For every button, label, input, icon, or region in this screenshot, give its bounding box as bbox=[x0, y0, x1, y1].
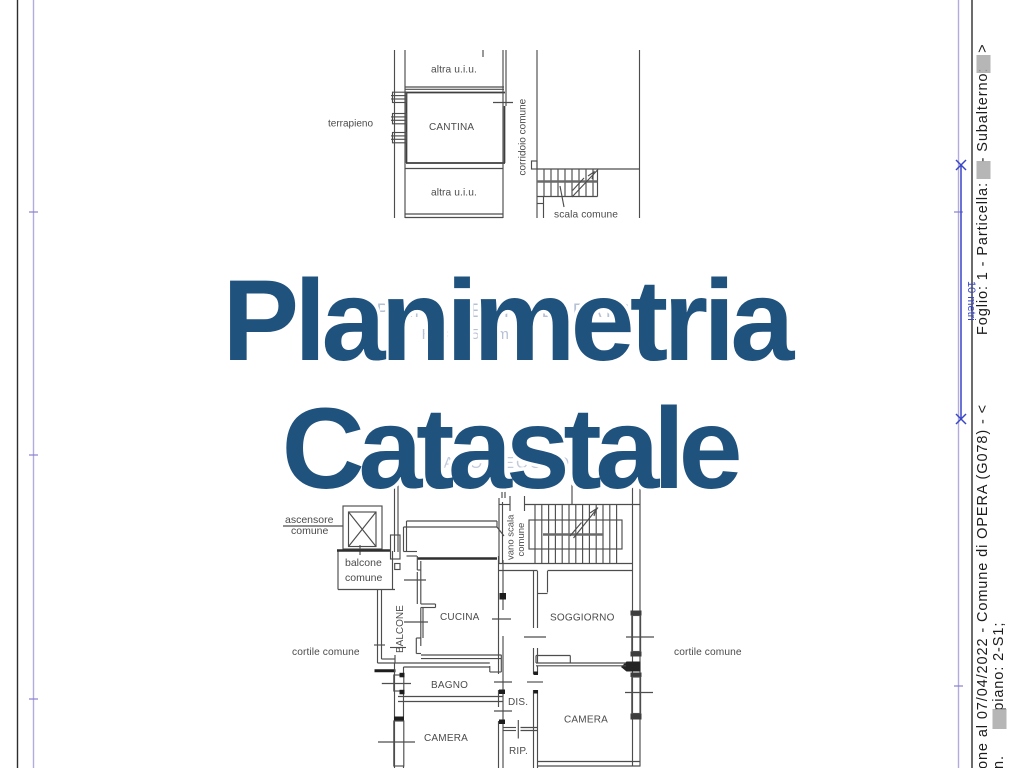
svg-text:comune: comune bbox=[345, 572, 383, 584]
svg-text:Planimetria: Planimetria bbox=[222, 257, 795, 385]
svg-text:Catastale: Catastale bbox=[282, 385, 740, 513]
svg-text:altra u.i.u.: altra u.i.u. bbox=[431, 65, 477, 76]
svg-text:RIP.: RIP. bbox=[509, 746, 528, 757]
svg-text:terrapieno: terrapieno bbox=[328, 119, 373, 130]
svg-text:CAMERA: CAMERA bbox=[424, 733, 468, 744]
svg-text:BALCONE: BALCONE bbox=[395, 605, 406, 653]
svg-text:n. piano: 2-S1;: n. piano: 2-S1; bbox=[991, 622, 1007, 768]
svg-text:altra u.i.u.: altra u.i.u. bbox=[431, 188, 477, 199]
svg-text:vano scala: vano scala bbox=[506, 514, 517, 560]
svg-text:CANTINA: CANTINA bbox=[429, 122, 474, 133]
svg-text:cortile comune: cortile comune bbox=[292, 647, 360, 658]
svg-text:comune: comune bbox=[291, 525, 329, 537]
svg-text:BAGNO: BAGNO bbox=[431, 680, 468, 691]
svg-text:one al 07/04/2022 - Comune di: one al 07/04/2022 - Comune di OPERA (G07… bbox=[975, 44, 991, 768]
svg-text:cortile comune: cortile comune bbox=[674, 647, 742, 658]
svg-text:comune: comune bbox=[516, 523, 527, 557]
svg-text:CUCINA: CUCINA bbox=[440, 612, 480, 623]
svg-text:SOGGIORNO: SOGGIORNO bbox=[550, 613, 615, 624]
svg-text:balcone: balcone bbox=[345, 557, 382, 569]
svg-text:scala comune: scala comune bbox=[554, 210, 618, 221]
svg-text:DIS.: DIS. bbox=[508, 697, 528, 708]
svg-text:CAMERA: CAMERA bbox=[564, 715, 608, 726]
svg-text:corridoio comune: corridoio comune bbox=[518, 98, 529, 175]
